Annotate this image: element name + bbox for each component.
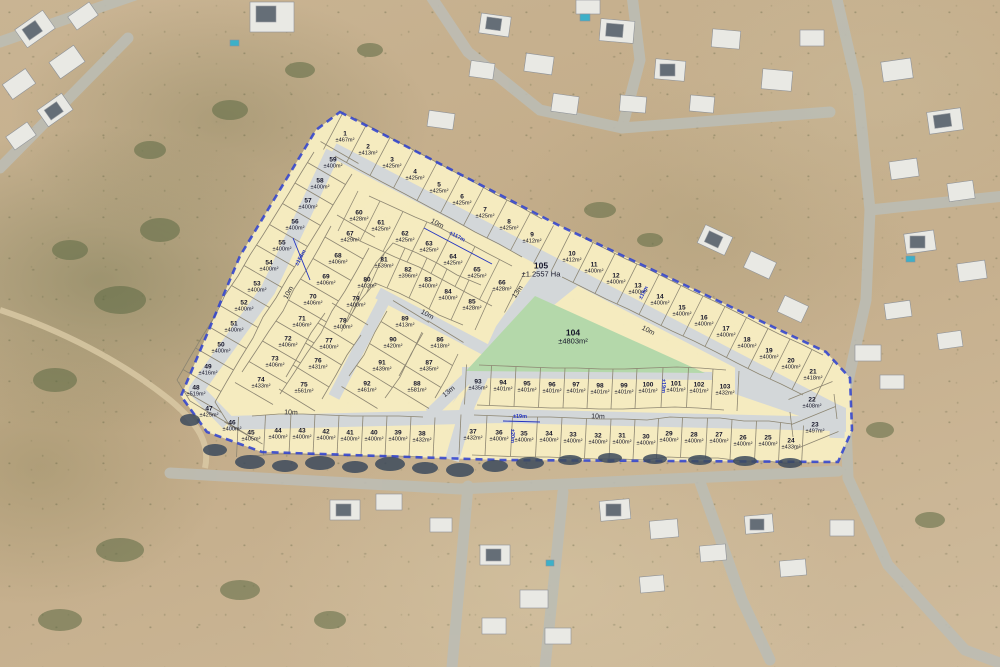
lot-area: ±400m²	[419, 283, 438, 289]
lot-area: ±400m²	[212, 348, 231, 354]
lot-label: 93±435m²	[469, 378, 488, 391]
lot-number: 81	[375, 256, 394, 263]
lot-number: 68	[329, 252, 348, 259]
lot-area: ±400m²	[629, 289, 648, 295]
dimension-label: ±117m	[448, 230, 466, 243]
lot-label: 85±428m²	[463, 298, 482, 311]
open-space-label: 104±4803m²	[558, 328, 588, 345]
lot-label: 82±396m²	[399, 266, 418, 279]
lot-number: 20	[782, 357, 801, 364]
lot-area: ±467m²	[336, 137, 355, 143]
lot-area: ±400m²	[293, 434, 312, 440]
lot-number: 25	[759, 434, 778, 441]
lot-area: ±400m²	[637, 440, 656, 446]
lot-number: 32	[589, 432, 608, 439]
lot-label: 83±400m²	[419, 276, 438, 289]
lot-label: 81±539m²	[375, 256, 394, 269]
lot-area: ±400m²	[710, 438, 729, 444]
lot-label: 66±428m²	[493, 279, 512, 292]
lot-number: 22	[803, 396, 822, 403]
lot-label: 42±400m²	[317, 428, 336, 441]
lot-number: 74	[252, 376, 271, 383]
lot-number: 36	[490, 429, 509, 436]
lot-area: ±401m²	[543, 388, 562, 394]
lot-area: ±432m²	[413, 437, 432, 443]
lot-area: ±400m²	[347, 302, 366, 308]
lot-label: 61±425m²	[372, 219, 391, 232]
lot-area: ±400m²	[320, 344, 339, 350]
lot-number: 101	[667, 380, 686, 387]
lot-area: ±425m²	[430, 188, 449, 194]
lot-label: 10±412m²	[563, 250, 582, 263]
lot-number: 24	[782, 437, 801, 444]
lot-area: ±401m²	[591, 389, 610, 395]
lot-area: ±400m²	[660, 437, 679, 443]
lot-label: 72±406m²	[279, 335, 298, 348]
lot-number: 43	[293, 427, 312, 434]
lot-label: 40±400m²	[365, 429, 384, 442]
lot-label: 53±400m²	[248, 280, 267, 293]
lot-number: 91	[373, 359, 392, 366]
lot-number: 59	[324, 156, 343, 163]
lot-number: 27	[710, 431, 729, 438]
lot-label: 103±432m²	[716, 383, 735, 396]
lot-number: 84	[439, 288, 458, 295]
lot-label: 12±400m²	[607, 272, 626, 285]
lot-number: 13	[629, 282, 648, 289]
lot-label: 9±412m²	[523, 231, 542, 244]
lot-number: 66	[493, 279, 512, 286]
lot-label: 99±401m²	[615, 382, 634, 395]
lot-number: 3	[383, 156, 402, 163]
lot-label: 29±400m²	[660, 430, 679, 443]
lot-label: 70±406m²	[304, 293, 323, 306]
lot-number: 88	[408, 380, 427, 387]
lot-number: 95	[518, 380, 537, 387]
lot-label: 4±425m²	[406, 168, 425, 181]
lot-number: 92	[358, 380, 377, 387]
lot-area: ±400m²	[717, 332, 736, 338]
lot-label: 54±400m²	[260, 259, 279, 272]
dimension-label: ±19m	[660, 379, 666, 393]
lot-area: ±406m²	[266, 362, 285, 368]
lot-label: 89±413m²	[396, 315, 415, 328]
lot-label: 65±425m²	[468, 266, 487, 279]
lot-number: 10	[563, 250, 582, 257]
lot-number: 58	[311, 177, 330, 184]
lot-area: ±408m²	[803, 403, 822, 409]
road-width-label: 10m	[284, 409, 298, 416]
lot-number: 9	[523, 231, 542, 238]
lot-number: 87	[420, 359, 439, 366]
lot-area: ±420m²	[384, 343, 403, 349]
lot-label: 8±425m²	[500, 218, 519, 231]
lot-number: 5	[430, 181, 449, 188]
lot-number: 23	[806, 421, 825, 428]
lot-area: ±400m²	[651, 300, 670, 306]
lot-area: ±418m²	[431, 343, 450, 349]
lot-label: 26±400m²	[734, 434, 753, 447]
lot-area: ±406m²	[317, 280, 336, 286]
dimension-label: ±20m	[509, 429, 515, 443]
lot-label: 5±425m²	[430, 181, 449, 194]
lot-number: 40	[365, 429, 384, 436]
lot-label: 28±400m²	[685, 431, 704, 444]
lot-label: 91±439m²	[373, 359, 392, 372]
dimension-label: ±19m	[513, 414, 527, 420]
lot-label: 37±432m²	[464, 428, 483, 441]
lot-number: 17	[717, 325, 736, 332]
lot-label: 38±432m²	[413, 430, 432, 443]
lot-label: 47±425m²	[200, 405, 219, 418]
dimension-label: ±19m	[638, 285, 650, 300]
lot-number: 4	[406, 168, 425, 175]
lot-number: 41	[341, 429, 360, 436]
lot-label: 97±401m²	[567, 381, 586, 394]
lot-number: 18	[738, 336, 757, 343]
lot-label: 25±400m²	[759, 434, 778, 447]
lot-label: 69±406m²	[317, 273, 336, 286]
lot-number: 72	[279, 335, 298, 342]
lot-number: 53	[248, 280, 267, 287]
lot-area: ±439m²	[373, 366, 392, 372]
lot-number: 45	[242, 429, 261, 436]
lot-area: ±429m²	[341, 237, 360, 243]
lot-number: 76	[309, 357, 328, 364]
lot-label: 6±425m²	[453, 193, 472, 206]
lot-number: 104	[558, 328, 588, 337]
lot-label: 2±413m²	[359, 143, 378, 156]
lot-area: ±401m²	[639, 388, 658, 394]
lot-area: ±400m²	[273, 246, 292, 252]
lot-label: 30±400m²	[637, 433, 656, 446]
lot-number: 51	[225, 320, 244, 327]
lot-label: 7±425m²	[476, 206, 495, 219]
lot-area: ±401m²	[567, 388, 586, 394]
lot-area: ±435m²	[420, 366, 439, 372]
lot-label: 101±401m²	[667, 380, 686, 393]
lot-area: ±400m²	[286, 225, 305, 231]
lot-number: 82	[399, 266, 418, 273]
lot-number: 57	[299, 197, 318, 204]
lot-number: 73	[266, 355, 285, 362]
lot-label: 88±581m²	[408, 380, 427, 393]
lot-number: 94	[494, 379, 513, 386]
lot-label: 46±400m²	[223, 419, 242, 432]
lot-area: ±400m²	[334, 324, 353, 330]
lot-number: 69	[317, 273, 336, 280]
lot-number: 54	[260, 259, 279, 266]
lot-label: 49±416m²	[199, 363, 218, 376]
lot-number: 80	[358, 276, 377, 283]
lot-number: 102	[690, 381, 709, 388]
lot-number: 103	[716, 383, 735, 390]
lot-number: 8	[500, 218, 519, 225]
lot-area: ±4803m²	[558, 338, 588, 346]
lot-area: ±433m²	[782, 444, 801, 450]
lot-label: 87±435m²	[420, 359, 439, 372]
lot-label: 75±561m²	[295, 381, 314, 394]
road-width-label: 10m	[591, 413, 605, 420]
lot-number: 77	[320, 337, 339, 344]
lot-area: ±435m²	[469, 385, 488, 391]
lot-area: ±400m²	[515, 437, 534, 443]
lot-label: 79±400m²	[347, 295, 366, 308]
lot-number: 62	[396, 230, 415, 237]
lot-number: 105	[522, 261, 561, 270]
lot-area: ±401m²	[667, 387, 686, 393]
lot-number: 99	[615, 382, 634, 389]
lot-area: ±396m²	[399, 273, 418, 279]
lot-number: 21	[804, 368, 823, 375]
lot-area: ±418m²	[804, 375, 823, 381]
lot-label: 43±400m²	[293, 427, 312, 440]
lot-area: ±400m²	[613, 439, 632, 445]
lot-area: ±416m²	[199, 370, 218, 376]
lot-area: ±406m²	[329, 259, 348, 265]
lot-area: ±401m²	[518, 387, 537, 393]
lot-label: 14±400m²	[651, 293, 670, 306]
lot-area: ±400m²	[341, 436, 360, 442]
lot-number: 2	[359, 143, 378, 150]
lot-label: 44±400m²	[269, 427, 288, 440]
lot-number: 86	[431, 336, 450, 343]
lot-number: 33	[564, 431, 583, 438]
lot-area: ±400m²	[490, 436, 509, 442]
lot-area: ±400m²	[223, 426, 242, 432]
lot-label: 1±467m²	[336, 130, 355, 143]
lot-number: 19	[760, 347, 779, 354]
lot-label: 56±400m²	[286, 218, 305, 231]
lot-label: 68±406m²	[329, 252, 348, 265]
lot-number: 7	[476, 206, 495, 213]
lot-number: 6	[453, 193, 472, 200]
lot-area: ±581m²	[408, 387, 427, 393]
lot-area: ±401m²	[690, 388, 709, 394]
road-width-label: 13m	[442, 385, 457, 399]
lot-label: 19±400m²	[760, 347, 779, 360]
lot-area: ±413m²	[396, 322, 415, 328]
lot-label: 17±400m²	[717, 325, 736, 338]
lot-area: ±400m²	[738, 343, 757, 349]
lot-number: 98	[591, 382, 610, 389]
lot-number: 52	[235, 299, 254, 306]
lot-number: 56	[286, 218, 305, 225]
lot-number: 26	[734, 434, 753, 441]
lot-label: 74±433m²	[252, 376, 271, 389]
lot-area: ±400m²	[540, 437, 559, 443]
lot-label: 92±461m²	[358, 380, 377, 393]
lot-number: 1	[336, 130, 355, 137]
lot-area: ±428m²	[493, 286, 512, 292]
lot-label: 67±429m²	[341, 230, 360, 243]
lot-label: 100±401m²	[639, 381, 658, 394]
lot-label: 95±401m²	[518, 380, 537, 393]
lot-area: ±400m²	[685, 438, 704, 444]
lot-label: 78±400m²	[334, 317, 353, 330]
lot-number: 35	[515, 430, 534, 437]
lot-label: 51±400m²	[225, 320, 244, 333]
lot-number: 46	[223, 419, 242, 426]
lot-area: ±400m²	[585, 268, 604, 274]
lot-label: 27±400m²	[710, 431, 729, 444]
lot-label: 41±400m²	[341, 429, 360, 442]
lot-area: ±400m²	[607, 279, 626, 285]
lot-area: ±1.2557 Ha	[522, 271, 561, 279]
lot-label: 36±400m²	[490, 429, 509, 442]
lot-area: ±428m²	[463, 305, 482, 311]
lot-number: 64	[444, 253, 463, 260]
lot-area: ±425m²	[372, 226, 391, 232]
lot-label: 64±425m²	[444, 253, 463, 266]
lot-label: 20±400m²	[782, 357, 801, 370]
lot-area: ±400m²	[269, 434, 288, 440]
lot-label: 24±433m²	[782, 437, 801, 450]
lot-label: 86±418m²	[431, 336, 450, 349]
lot-label: 60±428m²	[350, 209, 369, 222]
lot-area: ±425m²	[453, 200, 472, 206]
lot-area: ±539m²	[375, 263, 394, 269]
lot-label: 18±400m²	[738, 336, 757, 349]
lot-number: 75	[295, 381, 314, 388]
lot-label: 52±400m²	[235, 299, 254, 312]
lot-label: 63±425m²	[420, 240, 439, 253]
lot-label: 45±405m²	[242, 429, 261, 442]
lot-area: ±400m²	[695, 321, 714, 327]
dimension-label: ±158m	[294, 249, 308, 267]
lot-area: ±432m²	[464, 435, 483, 441]
lot-label: 33±400m²	[564, 431, 583, 444]
lot-number: 83	[419, 276, 438, 283]
lot-number: 85	[463, 298, 482, 305]
lot-area: ±497m²	[806, 428, 825, 434]
lot-label: 58±400m²	[311, 177, 330, 190]
lot-label: 80±402m²	[358, 276, 377, 289]
lot-label: 16±400m²	[695, 314, 714, 327]
lot-labels-layer: 1±467m²2±413m²3±425m²4±425m²5±425m²6±425…	[0, 0, 1000, 667]
road-width-label: 10m	[419, 309, 434, 322]
lot-number: 63	[420, 240, 439, 247]
lot-label: 73±406m²	[266, 355, 285, 368]
lot-number: 42	[317, 428, 336, 435]
lot-number: 31	[613, 432, 632, 439]
lot-label: 62±425m²	[396, 230, 415, 243]
lot-label: 90±420m²	[384, 336, 403, 349]
lot-area: ±425m²	[444, 260, 463, 266]
lot-label: 71±406m²	[293, 315, 312, 328]
lot-area: ±406m²	[279, 342, 298, 348]
lot-number: 78	[334, 317, 353, 324]
lot-area: ±400m²	[235, 306, 254, 312]
lot-number: 70	[304, 293, 323, 300]
lot-area: ±400m²	[365, 436, 384, 442]
lot-number: 55	[273, 239, 292, 246]
lot-label: 59±400m²	[324, 156, 343, 169]
lot-number: 89	[396, 315, 415, 322]
lot-area: ±400m²	[324, 163, 343, 169]
lot-area: ±402m²	[358, 283, 377, 289]
lot-area: ±400m²	[673, 311, 692, 317]
lot-label: 22±408m²	[803, 396, 822, 409]
lot-label: 98±401m²	[591, 382, 610, 395]
lot-label: 84±400m²	[439, 288, 458, 301]
lot-number: 97	[567, 381, 586, 388]
lot-area: ±432m²	[716, 390, 735, 396]
lot-number: 16	[695, 314, 714, 321]
lot-label: 11±400m²	[585, 261, 604, 274]
lot-number: 90	[384, 336, 403, 343]
lot-area: ±400m²	[248, 287, 267, 293]
lot-area: ±431m²	[309, 364, 328, 370]
lot-area: ±401m²	[494, 386, 513, 392]
lot-area: ±425m²	[476, 213, 495, 219]
lot-label: 34±400m²	[540, 430, 559, 443]
lot-area: ±425m²	[406, 175, 425, 181]
road-width-label: 10m	[283, 285, 296, 300]
lot-area: ±406m²	[304, 300, 323, 306]
lot-area: ±400m²	[734, 441, 753, 447]
lot-number: 11	[585, 261, 604, 268]
lot-number: 50	[212, 341, 231, 348]
lot-area: ±400m²	[389, 436, 408, 442]
lot-label: 96±401m²	[543, 381, 562, 394]
lot-label: 50±400m²	[212, 341, 231, 354]
lot-number: 93	[469, 378, 488, 385]
lot-area: ±400m²	[311, 184, 330, 190]
lot-label: 21±418m²	[804, 368, 823, 381]
lot-area: ±425m²	[200, 412, 219, 418]
lot-label: 32±400m²	[589, 432, 608, 445]
lot-number: 28	[685, 431, 704, 438]
lot-area: ±425m²	[396, 237, 415, 243]
lot-label: 57±400m²	[299, 197, 318, 210]
lot-number: 44	[269, 427, 288, 434]
lot-area: ±425m²	[500, 225, 519, 231]
lot-area: ±461m²	[358, 387, 377, 393]
lot-area: ±561m²	[295, 388, 314, 394]
lot-area: ±425m²	[420, 247, 439, 253]
lot-area: ±405m²	[242, 436, 261, 442]
lot-label: 3±425m²	[383, 156, 402, 169]
lot-area: ±400m²	[782, 364, 801, 370]
lot-label: 31±400m²	[613, 432, 632, 445]
lot-number: 60	[350, 209, 369, 216]
lot-number: 61	[372, 219, 391, 226]
lot-label: 102±401m²	[690, 381, 709, 394]
lot-number: 12	[607, 272, 626, 279]
lot-area: ±400m²	[260, 266, 279, 272]
lot-label: 15±400m²	[673, 304, 692, 317]
lot-area: ±428m²	[350, 216, 369, 222]
lot-number: 29	[660, 430, 679, 437]
lot-area: ±400m²	[760, 354, 779, 360]
lot-area: ±519m²	[187, 391, 206, 397]
lot-label: 39±400m²	[389, 429, 408, 442]
lot-label: 77±400m²	[320, 337, 339, 350]
lot-area: ±412m²	[563, 257, 582, 263]
lot-area: ±412m²	[523, 238, 542, 244]
lot-area: ±401m²	[615, 389, 634, 395]
lot-area: ±400m²	[589, 439, 608, 445]
lot-number: 48	[187, 384, 206, 391]
lot-number: 65	[468, 266, 487, 273]
lot-number: 14	[651, 293, 670, 300]
lot-number: 100	[639, 381, 658, 388]
lot-area: ±400m²	[759, 441, 778, 447]
lot-label: 23±497m²	[806, 421, 825, 434]
lot-area: ±413m²	[359, 150, 378, 156]
lot-area: ±425m²	[383, 163, 402, 169]
